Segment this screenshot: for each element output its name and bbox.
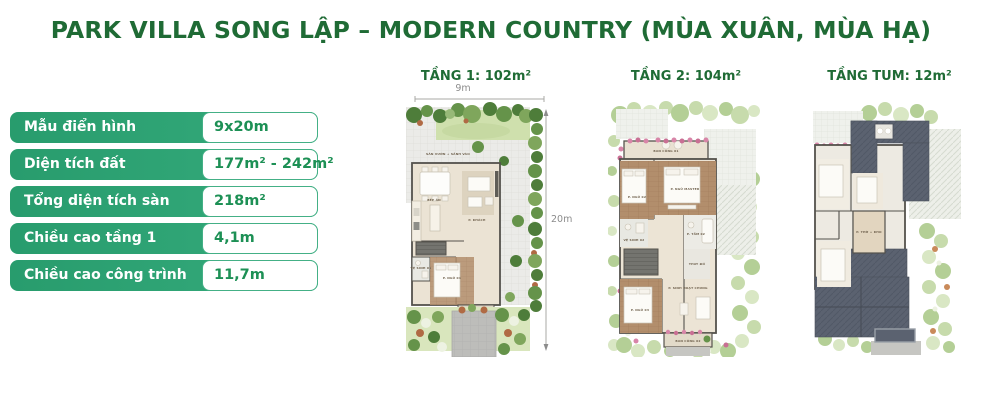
floor-plan-tang-1: SÂN VƯỜN + SẢNH VÀO BẾP ĂN P. KHÁCH VỆ S… xyxy=(406,101,546,357)
spec-row: Mẫu điển hình 9x20m xyxy=(10,112,318,143)
room-label: P. NGỦ 01 xyxy=(443,275,461,280)
spec-value: 11,7m xyxy=(202,260,318,291)
spec-table: Mẫu điển hình 9x20m Diện tích đất 177m² … xyxy=(10,112,318,297)
spec-label: Tổng diện tích sàn xyxy=(24,186,170,217)
room-label: THAY ĐỒ xyxy=(689,261,706,266)
room-label: P. NGỦ 02 xyxy=(628,194,646,199)
room-label: P. TẮM 02 xyxy=(687,231,705,236)
spec-row: Chiều cao công trình 11,7m xyxy=(10,260,318,291)
room-label: BAN CÔNG 01 xyxy=(653,148,678,153)
spec-label: Mẫu điển hình xyxy=(24,112,136,143)
dim-depth-label: 20m xyxy=(551,214,572,225)
spec-row: Diện tích đất 177m² - 242m² xyxy=(10,149,318,180)
spec-row: Tổng diện tích sàn 218m² xyxy=(10,186,318,217)
room-label: P. KHÁCH xyxy=(468,217,486,222)
spec-label: Chiều cao tầng 1 xyxy=(24,223,156,254)
spec-value: 9x20m xyxy=(202,112,318,143)
dim-width-label: 9m xyxy=(433,83,493,94)
spec-value: 218m² xyxy=(202,186,318,217)
page-title: PARK VILLA SONG LẬP – MODERN COUNTRY (MÙ… xyxy=(0,16,982,44)
room-label: P. THỜ + KHO xyxy=(856,229,882,234)
room-label: P. NGỦ MASTER xyxy=(671,186,700,191)
room-label: P. NGỦ 03 xyxy=(631,307,649,312)
room-label: SÂN VƯỜN + SẢNH VÀO xyxy=(426,151,470,156)
floor-plan-tang-2: BAN CÔNG 01 P. NGỦ MASTER P. NGỦ 02 VỆ S… xyxy=(608,101,763,357)
spec-label: Diện tích đất xyxy=(24,149,126,180)
room-label: BAN CÔNG 02 xyxy=(675,338,700,343)
room-label: VỆ SINH 02 xyxy=(624,237,645,242)
plan-title-tang-tum: TẦNG TUM: 12m² xyxy=(812,69,967,84)
room-label: VỆ SINH 01 xyxy=(411,265,432,270)
page: PARK VILLA SONG LẬP – MODERN COUNTRY (MÙ… xyxy=(0,0,982,409)
plan-title-tang-2: TẦNG 2: 104m² xyxy=(611,69,761,84)
floor-plan-tang-tum: P. THỜ + KHO xyxy=(809,101,967,357)
spec-value: 177m² - 242m² xyxy=(202,149,318,180)
spec-row: Chiều cao tầng 1 4,1m xyxy=(10,223,318,254)
spec-value: 4,1m xyxy=(202,223,318,254)
plan-title-tang-1: TẦNG 1: 102m² xyxy=(406,69,546,84)
room-label: P. SINH HOẠT CHUNG xyxy=(668,286,708,290)
spec-label: Chiều cao công trình xyxy=(24,260,187,291)
